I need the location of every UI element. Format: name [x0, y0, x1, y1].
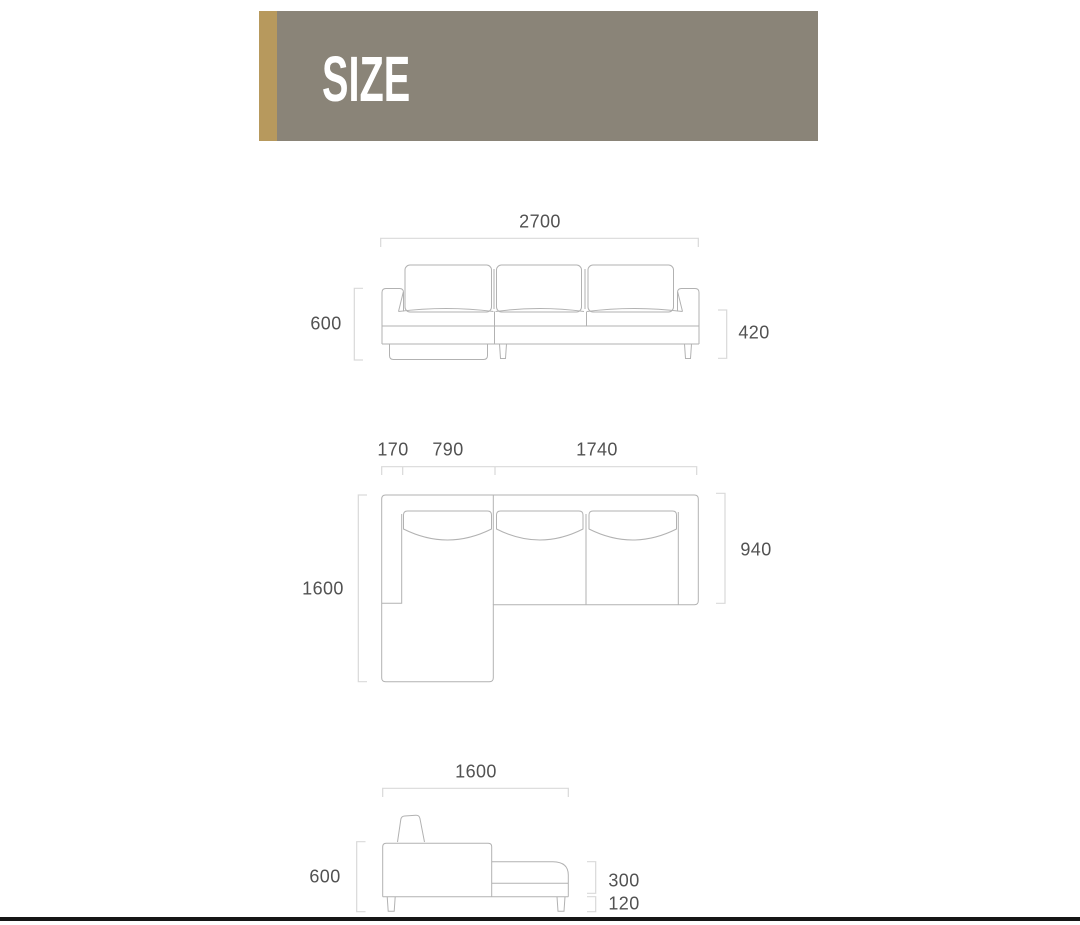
- dim-label-side-leg-height: 120: [608, 894, 639, 915]
- dim-label-front-seat-height: 420: [738, 323, 769, 344]
- dim-label-top-chaise-depth: 1600: [302, 579, 344, 600]
- dim-label-side-overall-height: 600: [309, 867, 340, 888]
- dim-label-front-overall-width: 2700: [519, 212, 561, 233]
- top-view-dimension-brackets: [358, 467, 725, 682]
- size-guide-page: SIZE: [0, 0, 1080, 925]
- dim-label-top-chaise-width: 790: [432, 440, 463, 461]
- dim-label-front-overall-height: 600: [310, 314, 341, 335]
- dim-label-top-body-width: 1740: [576, 440, 618, 461]
- sofa-top-view-drawing: [382, 495, 699, 682]
- front-view-dimension-brackets: [354, 238, 726, 360]
- sofa-dimension-drawings: [0, 0, 1080, 925]
- dim-label-top-body-depth: 940: [740, 540, 771, 561]
- sofa-side-view-drawing: [383, 815, 569, 911]
- dim-label-side-chaise-length: 1600: [455, 762, 497, 783]
- side-view-dimension-brackets: [357, 788, 596, 911]
- dim-label-side-platform-height: 300: [608, 871, 639, 892]
- dim-label-top-arm-width: 170: [377, 440, 408, 461]
- bottom-divider-bar: [0, 917, 1080, 921]
- sofa-front-view-drawing: [382, 265, 699, 360]
